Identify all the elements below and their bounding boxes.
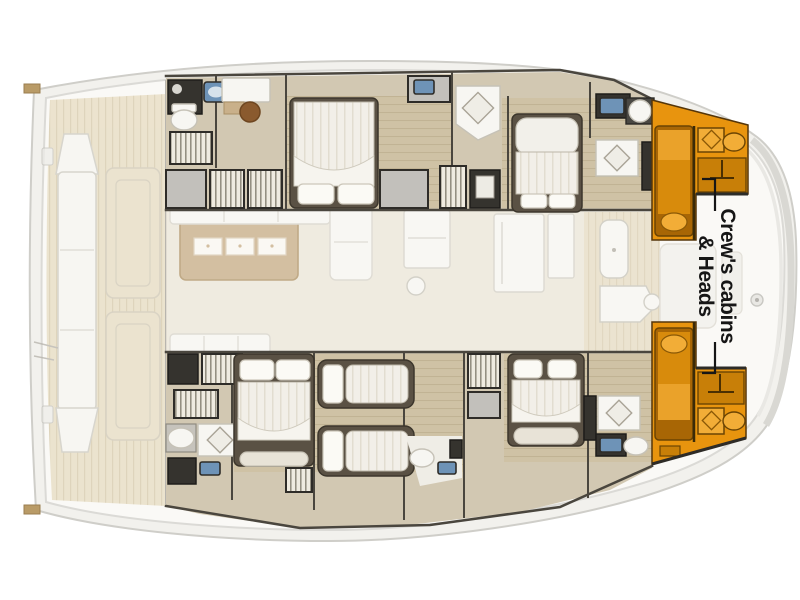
double-bed-mattress <box>516 152 578 194</box>
crew-step <box>660 446 680 456</box>
aft-deck <box>34 94 166 506</box>
toilet-screen <box>200 462 220 475</box>
vanity-sink <box>414 80 434 94</box>
locker-inset <box>476 176 494 198</box>
desk-chair <box>240 102 260 122</box>
floor-plan-canvas: Crew's cabins & Heads <box>0 0 800 600</box>
windlass-center <box>755 298 759 302</box>
wardrobe-louver <box>174 390 218 418</box>
salon-chaise <box>330 206 372 280</box>
wardrobe-louver <box>286 468 312 492</box>
wardrobe-louver <box>210 170 244 208</box>
single-berth-mattress <box>346 365 408 403</box>
wardrobe-louver <box>440 166 466 208</box>
pillow <box>514 360 542 378</box>
round-sink <box>629 100 651 122</box>
bed-footboard <box>240 452 308 466</box>
pillow <box>323 431 343 471</box>
sideboard <box>404 210 450 268</box>
crew-toilet <box>723 133 745 151</box>
forward-cockpit-sink <box>644 294 660 310</box>
crew-pillow <box>661 213 687 231</box>
crew-berth-blanket <box>658 130 690 160</box>
pillow <box>276 360 310 380</box>
salon-side-table <box>407 277 425 295</box>
desk <box>222 78 270 102</box>
drawer-knob <box>270 244 273 247</box>
bed-headrest <box>516 118 578 154</box>
crew-label-line1: Crew's cabins <box>716 208 739 343</box>
port-hull <box>166 70 654 212</box>
toilet <box>624 437 648 455</box>
single-berth-mattress <box>346 431 408 471</box>
crew-pillow <box>661 335 687 353</box>
cockpit-bench <box>58 172 96 410</box>
showerhead-icon <box>172 84 182 94</box>
wardrobe-louver <box>248 170 282 208</box>
drawer-knob <box>206 244 209 247</box>
sink-bowl <box>168 428 194 448</box>
wardrobe-louver <box>170 132 212 164</box>
toilet-screen <box>600 438 622 452</box>
stern-step <box>24 505 40 514</box>
bed-footboard <box>514 428 578 444</box>
pillow <box>549 194 575 208</box>
vanity-sink <box>600 98 624 114</box>
cleat <box>42 148 53 165</box>
wardrobe-cabinet <box>380 170 428 208</box>
wardrobe-louver <box>468 354 500 388</box>
yacht-floor-plan: Crew's cabins & Heads <box>0 0 800 600</box>
pillow <box>240 360 274 380</box>
pillow <box>521 194 547 208</box>
toilet-screen <box>438 462 456 474</box>
crew-berth-blanket <box>658 384 690 420</box>
toilet <box>171 110 197 130</box>
sun-lounger <box>106 168 160 298</box>
crew-toilet <box>723 412 745 430</box>
wardrobe-cabinet <box>468 392 500 418</box>
sink-bowl <box>410 449 434 467</box>
locker <box>450 440 462 458</box>
pillow <box>548 360 576 378</box>
pillow <box>298 184 334 204</box>
sun-lounger <box>106 312 160 440</box>
locker <box>168 458 196 484</box>
locker <box>584 396 596 440</box>
drawer-knob <box>238 244 241 247</box>
stern-step <box>24 84 40 93</box>
cleat <box>42 406 53 423</box>
wardrobe-cabinet <box>166 170 206 208</box>
entry-door <box>548 214 574 278</box>
crew-label-line2: & Heads <box>694 235 717 316</box>
locker <box>168 354 198 384</box>
pillow <box>338 184 374 204</box>
table-dot <box>612 248 616 252</box>
pillow <box>323 365 343 403</box>
